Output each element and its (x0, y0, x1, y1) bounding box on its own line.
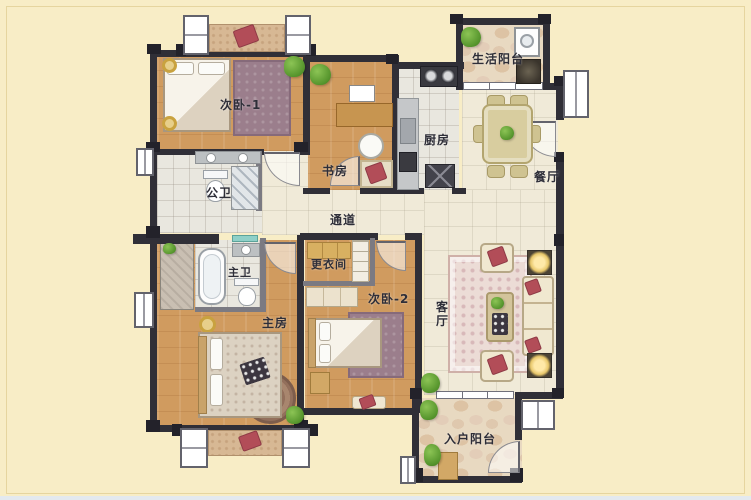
bedside-lamp (162, 116, 177, 131)
room-label-life-balcony: 生活阳台 (472, 50, 524, 67)
plant (424, 444, 441, 466)
pillar (386, 54, 398, 64)
pillow (210, 374, 223, 406)
pillar (146, 420, 160, 432)
dresser-bedroom2 (306, 287, 358, 307)
bathmat-master-bath (232, 235, 258, 242)
wall-life-balcony-right (543, 18, 550, 90)
wall-master-bath-bottom (195, 307, 266, 312)
window-master-left (134, 292, 154, 328)
sliding-door-entry-balcony (436, 391, 514, 399)
image-bottom-edge (0, 496, 751, 500)
burner (441, 69, 455, 83)
tea-tray (492, 313, 508, 335)
room-label-entry-balcony: 入户阳台 (444, 430, 496, 447)
plant (286, 406, 304, 424)
floor-lamp (527, 250, 552, 275)
pillar (552, 388, 564, 398)
kitchen-cabinet (399, 152, 417, 172)
wall-master-right (297, 235, 304, 431)
wall-entry-bottom (412, 476, 522, 483)
pillar (410, 388, 421, 399)
shoe-cabinet (438, 452, 458, 480)
bedside-lamp (199, 316, 216, 333)
floorplan-canvas: 次卧-1 书房 厨房 生活阳台 餐厅 公卫 通道 主卫 更衣间 次卧-2 主房 … (0, 0, 751, 500)
wall-corridor-bottom-b (405, 233, 422, 240)
pillar (147, 44, 161, 54)
window-dining-right (563, 70, 589, 118)
floor-corridor (308, 190, 424, 235)
pillar (450, 14, 463, 24)
window-entry-left (400, 456, 416, 484)
floor-drain (425, 164, 455, 188)
window-master-bottom-left (180, 428, 208, 468)
burner (424, 69, 438, 83)
window-bedroom1-right (285, 15, 311, 55)
pillow (210, 338, 223, 370)
plant (420, 400, 438, 420)
vanity-public-bath (195, 151, 261, 164)
wall-bedroom2-bottom (300, 408, 418, 415)
window-entry-right (521, 400, 555, 430)
plant (310, 64, 331, 85)
kitchen-counter (397, 98, 419, 190)
wall-corridor-bottom-a (300, 233, 378, 240)
room-label-dining: 餐厅 (534, 168, 560, 185)
floor-lamp (527, 353, 552, 378)
pillar (146, 226, 160, 238)
desk-monitor (349, 85, 375, 102)
pillow (198, 62, 225, 75)
sink (238, 153, 248, 163)
room-label-public-bath: 公卫 (206, 184, 232, 201)
closet-shelves (352, 240, 369, 282)
sink (241, 245, 251, 255)
bathtub-inner (203, 254, 221, 299)
wall-dressing-right (370, 238, 375, 285)
toilet (238, 287, 256, 306)
plant (421, 373, 440, 393)
desk-chair (358, 133, 384, 159)
shower (231, 166, 259, 210)
plant (163, 243, 176, 254)
bedside-lamp (162, 58, 177, 73)
pillar (554, 234, 564, 246)
room-label-master-bedroom: 主房 (262, 314, 288, 331)
dining-chair (510, 165, 528, 178)
room-label-dressing: 更衣间 (311, 256, 347, 272)
dining-chair (487, 165, 505, 178)
room-label-bedroom1: 次卧-1 (220, 96, 261, 113)
wall-study-top (303, 55, 399, 62)
desk (336, 103, 393, 127)
table-centerpiece (500, 126, 514, 140)
room-label-living: 客厅 (436, 300, 450, 328)
pillow (319, 344, 331, 363)
pillow (319, 322, 331, 341)
nightstand (310, 372, 330, 394)
headboard (198, 336, 207, 414)
pillar (294, 142, 308, 152)
room-label-kitchen: 厨房 (424, 131, 450, 148)
plant (284, 56, 305, 77)
wall-right-lower (556, 243, 564, 395)
wall-life-balcony-top (456, 18, 550, 25)
window-master-bottom-right (282, 428, 310, 468)
toilet-tank (203, 170, 228, 179)
wall-left-lower (150, 236, 157, 432)
room-label-bedroom2: 次卧-2 (368, 290, 409, 307)
room-label-study: 书房 (322, 162, 348, 179)
kitchen-sink (400, 118, 416, 144)
room-label-master-bath: 主卫 (228, 264, 252, 280)
wall-study-bottom-a (303, 188, 330, 194)
window-public-bath (136, 148, 154, 176)
wall-kitchen-bottom-b (452, 188, 466, 194)
washer-drum (520, 34, 534, 48)
wall-study-bottom-b (360, 188, 399, 194)
pillar (538, 14, 551, 24)
headboard (308, 318, 316, 368)
plant (461, 27, 481, 47)
room-label-corridor: 通道 (330, 211, 356, 228)
window-bedroom1-left (183, 15, 209, 55)
sink (206, 153, 216, 163)
plant (491, 297, 504, 309)
